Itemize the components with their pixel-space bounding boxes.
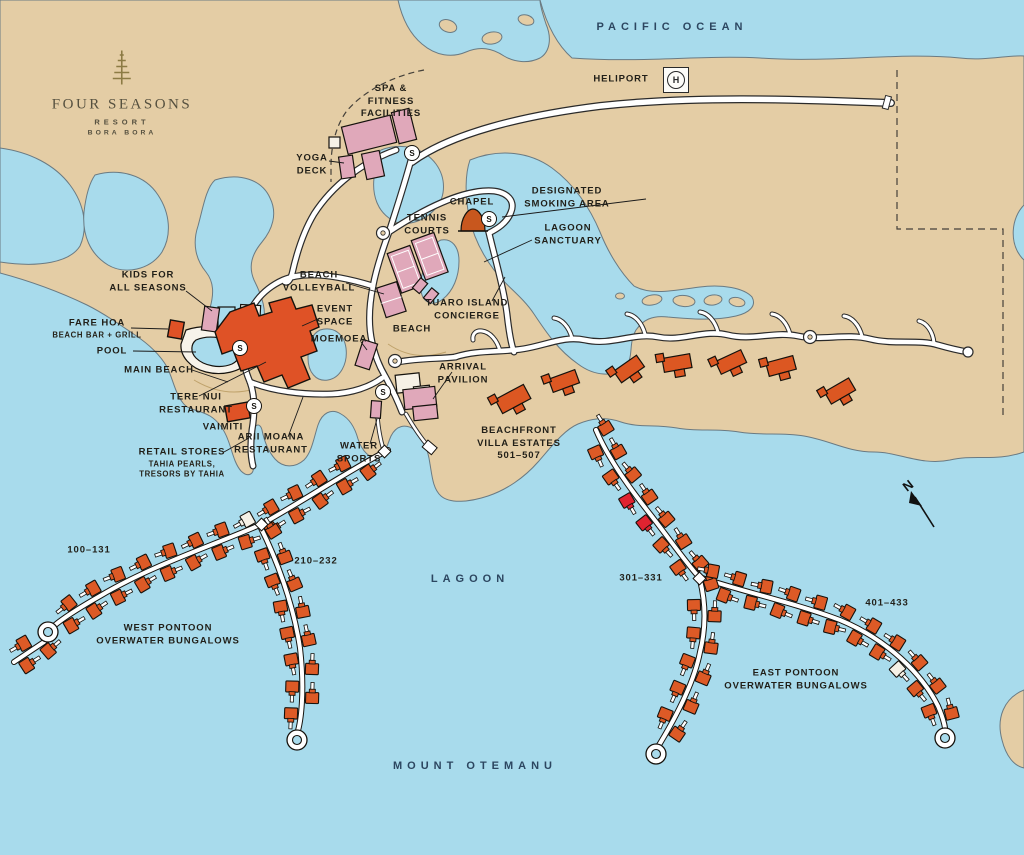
pontoon-ring (935, 728, 955, 748)
label-water-sports: WATERSPORTS (337, 440, 381, 465)
label-smoking-area: DESIGNATEDSMOKING AREA (524, 185, 609, 210)
four-seasons-logo: FOUR SEASONS RESORT BORA BORA (52, 48, 192, 137)
label-range-210-232: 210–232 (294, 556, 337, 569)
compass-north: N (900, 477, 934, 527)
pontoon-ring (38, 622, 58, 642)
label-villa-estates: BEACHFRONTVILLA ESTATES501–507 (477, 425, 561, 463)
logo-name: FOUR SEASONS (52, 97, 192, 114)
bungalow-icon (284, 708, 298, 730)
label-moemoea: MOEMOEA (311, 334, 367, 347)
bungalow-icon (305, 682, 319, 703)
shuttle-stop-icon: S (246, 398, 262, 414)
label-arrival-pavilion: ARRIVALPAVILION (438, 361, 489, 386)
pontoon-ring (287, 730, 307, 750)
bungalow-icon (686, 627, 701, 649)
shuttle-stop-icon: S (232, 340, 248, 356)
label-kids-for-all-seasons: KIDS FORALL SEASONS (109, 269, 186, 294)
spa-cottage (339, 155, 356, 179)
shuttle-stop-icon: S (481, 211, 497, 227)
logo-resort: RESORT (52, 118, 192, 127)
label-chapel: CHAPEL (450, 197, 494, 210)
shuttle-stop-icon: S (375, 384, 391, 400)
logo-location: BORA BORA (52, 130, 192, 137)
resort-map: N PACIFIC OCEAN LAGOON MOUNT OTEMANU FOU… (0, 0, 1024, 855)
label-west-pontoon: WEST PONTOONOVERWATER BUNGALOWS (96, 622, 239, 647)
label-beach: BEACH (393, 324, 431, 337)
shuttle-stop-icon: S (404, 145, 420, 161)
bungalow-icon (273, 600, 289, 623)
label-main-beach: MAIN BEACH (124, 365, 194, 378)
label-range-100-131: 100–131 (67, 545, 110, 558)
label-tuaro-concierge: TUARO ISLANDCONCIERGE (426, 297, 509, 322)
label-pool: POOL (97, 346, 128, 359)
label-lagoon-sanctuary: LAGOONSANCTUARY (534, 222, 601, 247)
label-retail-stores: RETAIL STORES TAHIA PEARLS, TRESORS BY T… (139, 446, 226, 479)
bungalow-icon (285, 681, 299, 702)
label-east-pontoon: EAST PONTOONOVERWATER BUNGALOWS (724, 667, 867, 692)
label-spa-fitness: SPA &FITNESSFACILITIES (361, 83, 421, 121)
north-letter: N (900, 477, 917, 495)
label-range-301-331: 301–331 (619, 573, 662, 586)
label-range-401-433: 401–433 (865, 598, 908, 611)
label-tere-nui: TERE NUIRESTAURANT (159, 391, 233, 416)
label-tennis-courts: TENNISCOURTS (404, 212, 450, 237)
heliport-icon: H (663, 67, 689, 93)
yoga-deck-platform (329, 137, 340, 148)
heliport-h-letter: H (667, 71, 685, 89)
label-yoga-deck: YOGADECK (296, 152, 328, 177)
label-event-space: EVENTSPACE (317, 303, 354, 328)
label-beach-volleyball: BEACHVOLLEYBALL (283, 269, 355, 294)
label-pacific-ocean: PACIFIC OCEAN (597, 21, 748, 33)
label-fare-hoa: FARE HOABEACH BAR + GRILL (52, 318, 141, 341)
label-arii-moana: ARII MOANARESTAURANT (234, 431, 308, 456)
bungalow-icon (708, 601, 722, 622)
bungalow-icon (687, 599, 700, 620)
label-heliport: HELIPORT (593, 74, 648, 87)
bungalow-icon (305, 653, 319, 674)
label-lagoon: LAGOON (431, 573, 509, 585)
water-sports-hut (370, 401, 381, 419)
fare-hoa-building (168, 320, 185, 339)
pine-tree-icon (100, 48, 144, 88)
label-mount-otemanu: MOUNT OTEMANU (393, 760, 557, 772)
corner-islet (1000, 690, 1024, 768)
pontoon-ring (646, 744, 666, 764)
